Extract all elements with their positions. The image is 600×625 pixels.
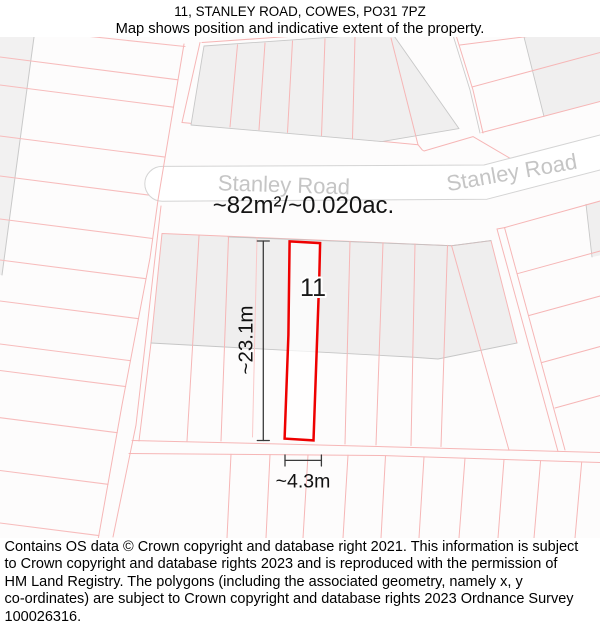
svg-text:~23.1m: ~23.1m bbox=[235, 306, 258, 375]
svg-text:~82m²/~0.020ac.: ~82m²/~0.020ac. bbox=[213, 192, 394, 219]
svg-text:~4.3m: ~4.3m bbox=[276, 471, 331, 493]
svg-text:11: 11 bbox=[300, 274, 326, 302]
